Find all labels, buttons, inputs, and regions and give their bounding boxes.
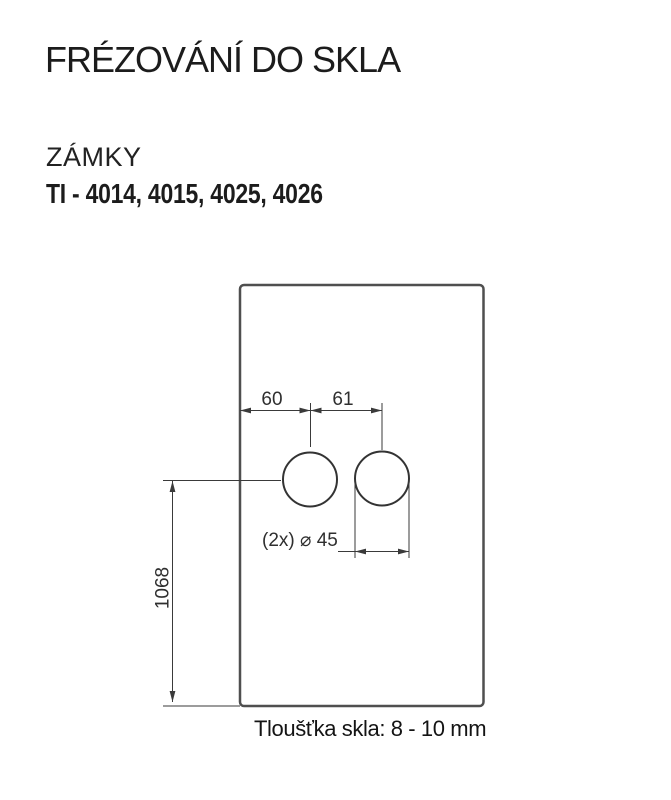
technical-drawing: 60 61 1068 (2x) ⌀ 45	[0, 0, 671, 800]
dim-edge-to-hole1: 60	[261, 389, 282, 410]
dim-hole1-to-hole2: 61	[332, 389, 353, 410]
hole-2	[355, 452, 409, 506]
thickness-note: Tloušťka skla: 8 - 10 mm	[254, 716, 486, 742]
dim-holes-diameter: (2x) ⌀ 45	[262, 530, 338, 551]
dim-panel-height: 1068	[153, 567, 174, 609]
hole-1	[283, 453, 337, 507]
page: FRÉZOVÁNÍ DO SKLA ZÁMKY TI - 4014, 4015,…	[0, 0, 671, 800]
